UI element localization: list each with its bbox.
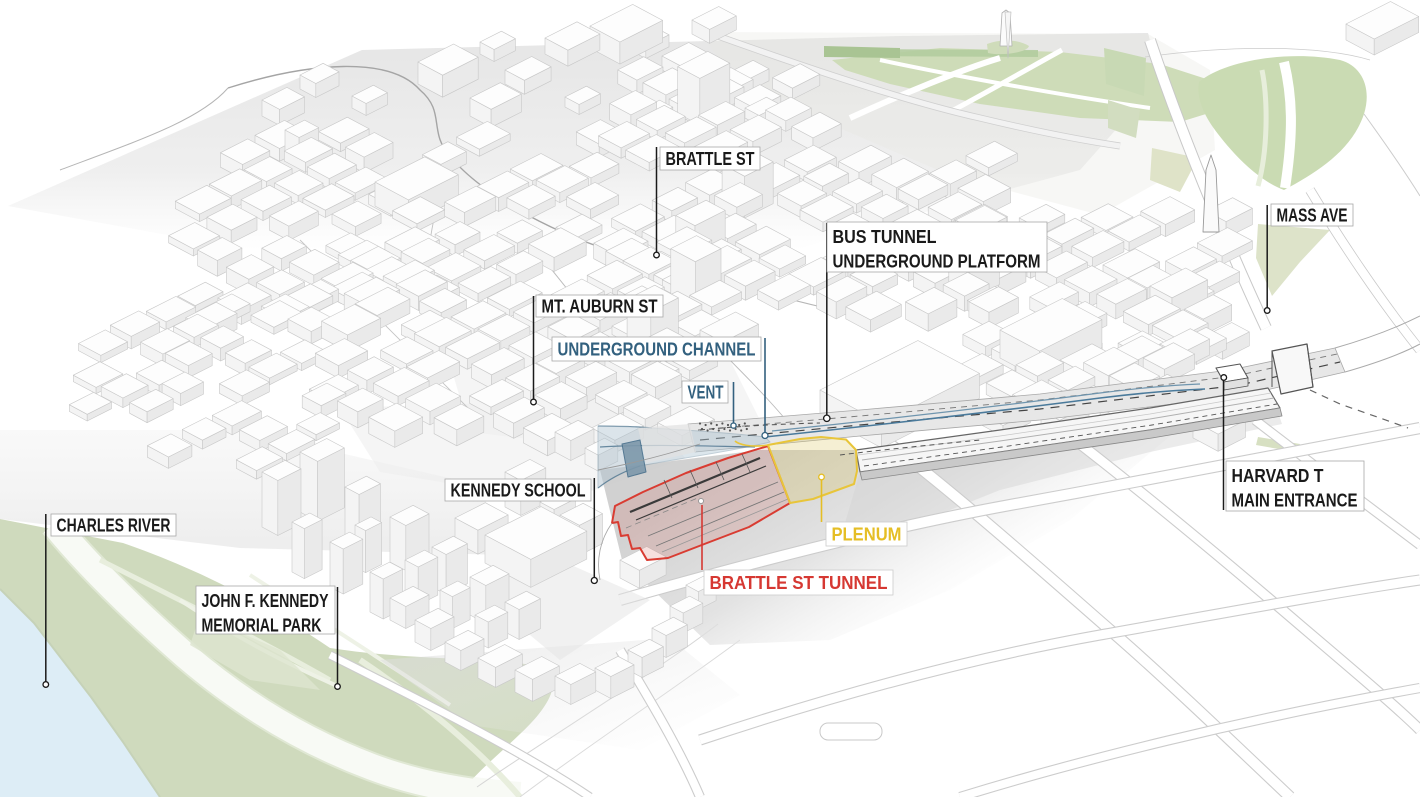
svg-text:MAIN ENTRANCE: MAIN ENTRANCE — [1232, 490, 1358, 511]
svg-text:UNDERGROUND CHANNEL: UNDERGROUND CHANNEL — [558, 339, 756, 360]
svg-text:CHARLES RIVER: CHARLES RIVER — [57, 515, 171, 536]
svg-text:MT. AUBURN ST: MT. AUBURN ST — [542, 296, 659, 317]
svg-text:HARVARD T: HARVARD T — [1232, 465, 1325, 486]
svg-text:UNDERGROUND PLATFORM: UNDERGROUND PLATFORM — [833, 251, 1041, 272]
svg-text:BRATTLE ST TUNNEL: BRATTLE ST TUNNEL — [710, 572, 888, 593]
svg-text:MASS AVE: MASS AVE — [1277, 205, 1348, 226]
svg-text:PLENUM: PLENUM — [832, 524, 902, 545]
svg-text:BRATTLE ST: BRATTLE ST — [666, 148, 756, 169]
svg-text:MEMORIAL PARK: MEMORIAL PARK — [202, 615, 322, 636]
svg-text:JOHN F. KENNEDY: JOHN F. KENNEDY — [202, 590, 330, 611]
svg-text:KENNEDY SCHOOL: KENNEDY SCHOOL — [451, 480, 586, 501]
svg-text:VENT: VENT — [688, 382, 725, 403]
svg-text:BUS TUNNEL: BUS TUNNEL — [833, 226, 937, 247]
